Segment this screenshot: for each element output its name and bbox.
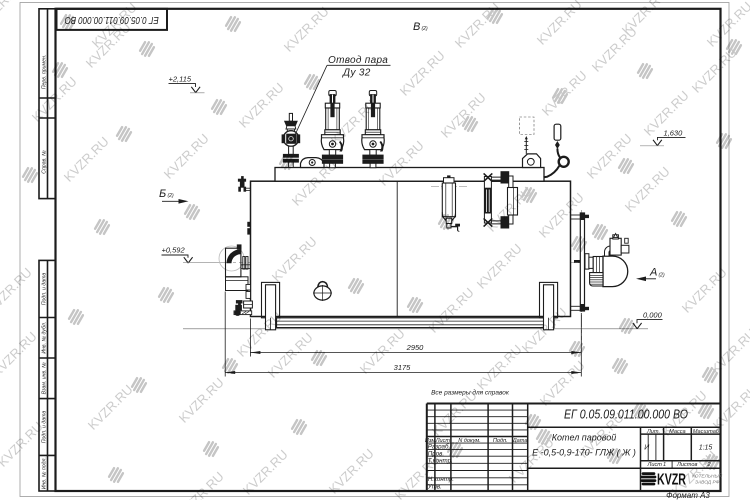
svg-text:Лист: Лист [647,462,663,468]
svg-text:(2): (2) [168,193,174,199]
svg-text:Справ. №: Справ. № [42,150,48,174]
svg-text:Инв. № подл.: Инв. № подл. [42,457,48,489]
svg-text:(2): (2) [659,273,665,279]
svg-text:Дата: Дата [512,438,528,444]
svg-text:Ду 32: Ду 32 [342,68,371,79]
svg-text:0,000: 0,000 [643,311,663,320]
svg-text:Масштаб: Масштаб [693,429,720,435]
svg-text:А: А [649,267,657,279]
svg-text:Отвод пара: Отвод пара [328,55,388,66]
svg-text:Подп.: Подп. [493,438,508,444]
svg-text:Б: Б [159,188,166,200]
svg-text:N докум.: N докум. [458,438,481,444]
svg-text:1: 1 [663,462,666,468]
svg-text:Утв.: Утв. [427,484,442,491]
svg-text:3175: 3175 [394,363,412,372]
svg-text:Перв. примен.: Перв. примен. [42,55,48,89]
svg-text:Лит.: Лит. [646,429,660,435]
svg-text:(2): (2) [422,26,428,32]
svg-text:Подп. и дата: Подп. и дата [42,273,48,306]
svg-text:Н.контр.: Н.контр. [428,476,454,483]
svg-text:1,630: 1,630 [664,129,684,138]
svg-text:ЗАВОД РФ: ЗАВОД РФ [695,480,720,486]
svg-text:+2,115: +2,115 [169,75,192,84]
svg-text:Взам. инв. №: Взам. инв. № [42,362,48,394]
svg-text:2950: 2950 [406,343,425,352]
svg-text:В: В [413,21,420,33]
svg-text:+0,592: +0,592 [162,246,186,255]
svg-text:Инв. № дубл.: Инв. № дубл. [42,322,48,354]
